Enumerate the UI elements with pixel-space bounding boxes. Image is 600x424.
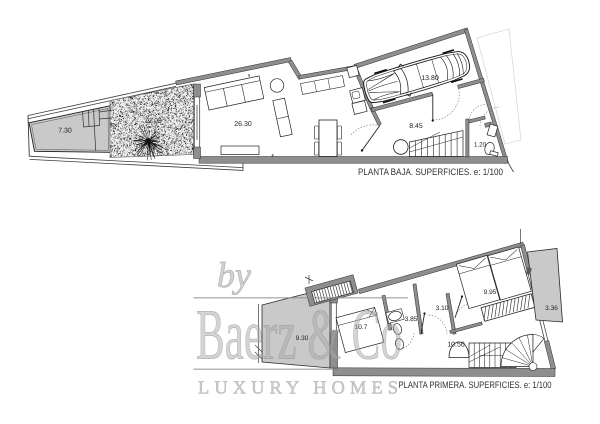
svg-text:9.95: 9.95 (484, 289, 497, 296)
svg-text:8.45: 8.45 (409, 123, 423, 130)
svg-text:7.30: 7.30 (58, 127, 72, 134)
svg-text:by: by (217, 255, 251, 295)
svg-text:12.08: 12.08 (144, 118, 162, 125)
svg-text:26.30: 26.30 (234, 121, 252, 128)
svg-text:1.20: 1.20 (474, 142, 487, 149)
svg-text:3.85: 3.85 (405, 316, 418, 323)
svg-text:PLANTA PRIMERA. SUPERFICIES. e: PLANTA PRIMERA. SUPERFICIES. e: 1/100 (399, 379, 552, 390)
svg-text:PLANTA BAJA. SUPERFICIES. e: 1: PLANTA BAJA. SUPERFICIES. e: 1/100 (358, 166, 503, 177)
svg-text:10.50: 10.50 (447, 342, 465, 349)
svg-text:s: s (247, 73, 250, 79)
svg-text:13.80: 13.80 (421, 75, 439, 82)
svg-text:3.10: 3.10 (436, 305, 449, 312)
svg-text:3.36: 3.36 (545, 305, 558, 312)
svg-text:s: s (271, 153, 274, 159)
svg-text:Baerz & Co: Baerz & Co (196, 295, 402, 375)
